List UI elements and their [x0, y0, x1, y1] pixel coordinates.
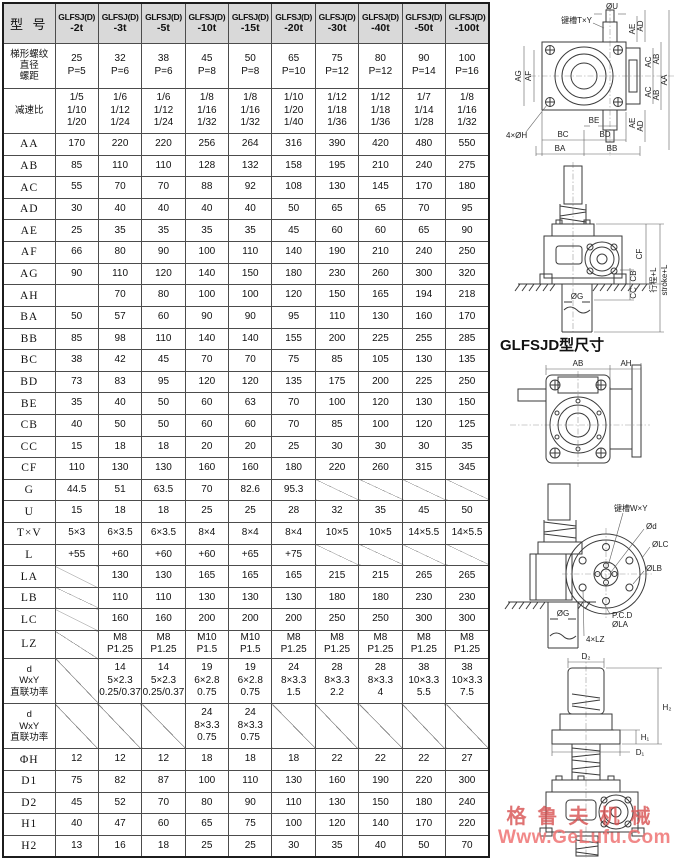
spec-cell: 85 — [55, 328, 98, 350]
spec-cell: 70 — [142, 792, 185, 814]
spec-cell: 60 — [142, 306, 185, 328]
row-label: AF — [3, 242, 55, 264]
row-label: T×V — [3, 523, 55, 545]
row-label: G — [3, 479, 55, 501]
spec-cell: 550 — [446, 134, 489, 156]
spec-cell: 110 — [98, 155, 141, 177]
spec-cell: 85 — [315, 414, 358, 436]
spec-cell: 18 — [185, 749, 228, 771]
fig3-labels: AB AH — [573, 359, 632, 368]
dim-label-od: Ød — [646, 522, 657, 531]
spec-cell: 110 — [315, 306, 358, 328]
row-label: LB — [3, 587, 55, 609]
spec-cell: 5×3 — [55, 523, 98, 545]
spec-cell: 18 — [272, 749, 315, 771]
spec-cell: 35 — [98, 220, 141, 242]
spec-cell: M10 P1.5 — [185, 631, 228, 659]
spec-cell: 165 — [185, 566, 228, 588]
row-label: BA — [3, 306, 55, 328]
spec-cell: 19 6×2.8 0.75 — [185, 658, 228, 703]
spec-cell — [55, 609, 98, 631]
spec-cell: 82 — [98, 770, 141, 792]
spec-cell: 215 — [359, 566, 402, 588]
spec-cell: M8 P1.25 — [359, 631, 402, 659]
model-header-15t: GLFSJ(D)-15t — [229, 3, 272, 43]
spec-cell: 25 — [55, 220, 98, 242]
stroke-label-en: stroke+L — [660, 264, 669, 295]
spec-cell: 19 6×2.8 0.75 — [229, 658, 272, 703]
spec-row-20: T×V5×36×3.56×3.58×48×48×410×510×514×5.51… — [3, 523, 489, 545]
spec-cell: +75 — [272, 544, 315, 566]
dim-label-af: AF — [524, 71, 533, 81]
model-size-label: -10t — [186, 23, 228, 35]
spec-cell: 120 — [185, 371, 228, 393]
spec-row-6: AE25353535354560606590 — [3, 220, 489, 242]
spec-cell: 230 — [315, 263, 358, 285]
spec-cell: 165 — [359, 285, 402, 307]
spec-cell: 57 — [98, 306, 141, 328]
row-label: AD — [3, 198, 55, 220]
dim-label-be: BE — [589, 116, 600, 125]
spec-cell — [55, 658, 98, 703]
spec-cell: 390 — [315, 134, 358, 156]
spec-cell: 35 — [359, 501, 402, 523]
model-size-label: -50t — [403, 23, 445, 35]
spec-cell: 35 — [229, 220, 272, 242]
spec-cell: 170 — [55, 134, 98, 156]
spec-cell — [315, 704, 358, 749]
spec-cell: 65 — [185, 814, 228, 836]
spec-cell — [272, 704, 315, 749]
spec-cell: 50 — [272, 198, 315, 220]
spec-cell: M8 P1.25 — [315, 631, 358, 659]
spec-cell: 90 — [229, 792, 272, 814]
spec-cell: 40 — [98, 393, 141, 415]
spec-cell: 12 — [142, 749, 185, 771]
dim-label-h2: H₂ — [663, 703, 672, 712]
spec-cell: 160 — [229, 458, 272, 480]
dim-label-cf: CF — [635, 249, 644, 260]
spec-cell: M8 P1.25 — [272, 631, 315, 659]
spec-cell: 320 — [446, 263, 489, 285]
spec-row-14: BE354050606370100120130150 — [3, 393, 489, 415]
dim-label-ab-top: AB — [652, 54, 661, 65]
spec-cell: 130 — [359, 306, 402, 328]
row-label: AA — [3, 134, 55, 156]
spec-cell: 60 — [185, 393, 228, 415]
spec-cell: 50 — [402, 835, 445, 857]
row-label: AE — [3, 220, 55, 242]
dim-label-og2: ØG — [557, 609, 569, 618]
spec-cell: 108 — [272, 177, 315, 199]
spec-cell: 265 — [446, 566, 489, 588]
spec-cell: 14 5×2.3 0.25/0.37 — [142, 658, 185, 703]
spec-cell: 264 — [229, 134, 272, 156]
spec-cell: 160 — [315, 770, 358, 792]
dim-label-ba: BA — [555, 144, 566, 153]
spec-cell: 194 — [402, 285, 445, 307]
spec-cell: 200 — [315, 328, 358, 350]
spec-cell: 170 — [446, 306, 489, 328]
spec-cell: 220 — [315, 458, 358, 480]
spec-cell: 50 — [142, 414, 185, 436]
spec-cell: 260 — [359, 263, 402, 285]
spec-cell: 130 — [272, 587, 315, 609]
spec-row-16: CC15181820202530303035 — [3, 436, 489, 458]
spec-cell: 6×3.5 — [142, 523, 185, 545]
spec-cell: 38 10×3.3 7.5 — [446, 658, 489, 703]
spec-cell: 250 — [359, 609, 402, 631]
spec-cell: 16 — [98, 835, 141, 857]
spec-cell: 27 — [446, 749, 489, 771]
spec-cell: 90 — [446, 220, 489, 242]
model-size-label: -5t — [142, 23, 184, 35]
spec-cell: 128 — [185, 155, 228, 177]
row-label: AH — [3, 285, 55, 307]
spec-cell: 110 — [142, 587, 185, 609]
spec-cell: 8×4 — [229, 523, 272, 545]
spec-cell: 25 P=5 — [55, 43, 98, 88]
spec-cell: 22 — [315, 749, 358, 771]
spec-cell: 315 — [402, 458, 445, 480]
spec-cell — [98, 704, 141, 749]
dim-label-h1: H₁ — [641, 733, 650, 742]
spec-cell: 40 — [359, 835, 402, 857]
spec-cell — [55, 566, 98, 588]
spec-cell: 25 — [229, 501, 272, 523]
spec-cell: 40 — [142, 198, 185, 220]
spec-cell: 90 — [229, 306, 272, 328]
spec-cell — [402, 544, 445, 566]
dim-label-ab-bottom: AB — [652, 90, 661, 101]
spec-cell: 300 — [446, 609, 489, 631]
row-label: AG — [3, 263, 55, 285]
spec-cell: 195 — [315, 155, 358, 177]
spec-cell: 165 — [229, 566, 272, 588]
spec-row-7: AF668090100110140190210240250 — [3, 242, 489, 264]
spec-cell: 82.6 — [229, 479, 272, 501]
spec-cell: 160 — [98, 609, 141, 631]
model-header-3t: GLFSJ(D)-3t — [98, 3, 141, 43]
spec-cell: 60 — [229, 414, 272, 436]
dim-label-ola: ØLA — [612, 620, 629, 629]
spec-cell: 100 — [185, 770, 228, 792]
model-header-5t: GLFSJ(D)-5t — [142, 3, 185, 43]
spec-cell: 75 — [229, 814, 272, 836]
spec-cell: 200 — [359, 371, 402, 393]
section-heading: GLFSJD型尺寸 — [500, 334, 604, 355]
model-header-corner: 型 号 — [3, 3, 55, 43]
spec-cell: 1/8 1/16 1/32 — [185, 88, 228, 133]
spec-cell: 25 — [272, 436, 315, 458]
spec-row-2: AA170220220256264316390420480550 — [3, 134, 489, 156]
spec-cell: 1/5 1/10 1/20 — [55, 88, 98, 133]
spec-cell: 130 — [98, 566, 141, 588]
spec-cell: 120 — [359, 393, 402, 415]
row-label: H2 — [3, 835, 55, 857]
spec-cell: 105 — [359, 350, 402, 372]
spec-cell: 220 — [402, 770, 445, 792]
spec-cell: 170 — [402, 177, 445, 199]
watermark-line2: Www.GeLufu.Com — [498, 828, 670, 849]
dim-label-olc: ØLC — [652, 540, 669, 549]
spec-cell: 10×5 — [315, 523, 358, 545]
spec-cell: 12 — [55, 749, 98, 771]
spec-row-11: BB8598110140140155200225255285 — [3, 328, 489, 350]
row-label: 梯形螺纹 直径 螺距 — [3, 43, 55, 88]
spec-cell: 145 — [359, 177, 402, 199]
spec-cell: 45 P=8 — [185, 43, 228, 88]
spec-row-30: D24552708090110130150180240 — [3, 792, 489, 814]
spec-cell — [402, 479, 445, 501]
spec-cell: 155 — [272, 328, 315, 350]
spec-row-18: G44.55163.57082.695.3 — [3, 479, 489, 501]
spec-cell: 210 — [359, 242, 402, 264]
spec-cell: 50 — [142, 393, 185, 415]
spec-cell: 80 — [185, 792, 228, 814]
model-header-40t: GLFSJ(D)-40t — [359, 3, 402, 43]
spec-cell: 140 — [359, 814, 402, 836]
spec-cell: 85 — [55, 155, 98, 177]
spec-row-4: AC5570708892108130145170180 — [3, 177, 489, 199]
fig3-top-view-drawing: AB AH — [490, 355, 678, 480]
spec-cell: 8×4 — [185, 523, 228, 545]
spec-cell: 1/8 1/16 1/32 — [446, 88, 489, 133]
spec-cell: 100 — [272, 814, 315, 836]
spec-row-19: U15181825252832354550 — [3, 501, 489, 523]
spec-cell: 240 — [446, 792, 489, 814]
spec-row-9: AH7080100100120150165194218 — [3, 285, 489, 307]
spec-cell: 180 — [359, 587, 402, 609]
dim-label-cb: CB — [629, 270, 638, 281]
spec-cell — [402, 704, 445, 749]
spec-cell — [315, 544, 358, 566]
drawings-panel: ØU 键槽T×Y AG AF AE AD AC AB AA AC AB AE A… — [490, 0, 678, 860]
model-header-2t: GLFSJ(D)-2t — [55, 3, 98, 43]
spec-cell — [446, 479, 489, 501]
spec-cell: 6×3.5 — [98, 523, 141, 545]
spec-sheet-page: 型 号GLFSJ(D)-2tGLFSJ(D)-3tGLFSJ(D)-5tGLFS… — [0, 0, 678, 860]
dim-label-ah: AH — [620, 359, 631, 368]
spec-cell: 250 — [315, 609, 358, 631]
spec-row-22: LA130130165165165215215265265 — [3, 566, 489, 588]
spec-row-13: BD738395120120135175200225250 — [3, 371, 489, 393]
spec-cell: 70 — [185, 479, 228, 501]
dim-label-d2: D₂ — [582, 652, 591, 661]
model-size-label: -15t — [229, 23, 271, 35]
spec-cell: 88 — [185, 177, 228, 199]
dim-label-ab: AB — [573, 359, 584, 368]
spec-row-31: H14047606575100120140170220 — [3, 814, 489, 836]
spec-cell: 30 — [272, 835, 315, 857]
spec-cell: 120 — [402, 414, 445, 436]
spec-cell: 215 — [315, 566, 358, 588]
model-header-100t: GLFSJ(D)-100t — [446, 3, 489, 43]
spec-cell — [446, 544, 489, 566]
row-label: ΦH — [3, 749, 55, 771]
fig1-top-view-drawing: ØU 键槽T×Y AG AF AE AD AC AB AA AC AB AE A… — [490, 2, 678, 160]
spec-cell: 250 — [446, 371, 489, 393]
spec-row-28: ΦH12121218181822222227 — [3, 749, 489, 771]
spec-cell: 1/6 1/12 1/24 — [98, 88, 141, 133]
spec-cell: 45 — [402, 501, 445, 523]
spec-cell: 1/12 1/18 1/36 — [359, 88, 402, 133]
spec-cell: 24 8×3.3 0.75 — [229, 704, 272, 749]
spec-cell: 220 — [446, 814, 489, 836]
spec-cell: 240 — [402, 155, 445, 177]
spec-cell: 255 — [402, 328, 445, 350]
dim-label-pcd: P.C.D — [612, 611, 633, 620]
spec-cell: 230 — [402, 587, 445, 609]
spec-cell: 130 — [315, 177, 358, 199]
spec-cell: 15 — [55, 436, 98, 458]
spec-cell: 92 — [229, 177, 272, 199]
spec-cell: 110 — [98, 587, 141, 609]
model-header-50t: GLFSJ(D)-50t — [402, 3, 445, 43]
spec-cell: 18 — [98, 501, 141, 523]
spec-cell: 180 — [272, 458, 315, 480]
row-label: D1 — [3, 770, 55, 792]
spec-row-12: BC38424570707585105130135 — [3, 350, 489, 372]
dim-label-ad-bottom: AD — [636, 120, 645, 131]
spec-cell: 14 5×2.3 0.25/0.37 — [98, 658, 141, 703]
spec-cell: 25 — [185, 501, 228, 523]
spec-row-25: LZM8 P1.25M8 P1.25M10 P1.5M10 P1.5M8 P1.… — [3, 631, 489, 659]
spec-cell: 90 — [185, 306, 228, 328]
spec-cell: 20 — [185, 436, 228, 458]
spec-cell: 130 — [402, 350, 445, 372]
fig2-front-view-drawing: ØG CB CC CF 行程+L stroke+L — [490, 160, 678, 336]
spec-cell: 28 — [272, 501, 315, 523]
spec-cell: 8×4 — [272, 523, 315, 545]
spec-cell: 18 — [142, 436, 185, 458]
row-label: LZ — [3, 631, 55, 659]
spec-cell: 130 — [185, 587, 228, 609]
spec-cell: 40 — [55, 814, 98, 836]
spec-cell: M10 P1.5 — [229, 631, 272, 659]
spec-cell: 51 — [98, 479, 141, 501]
model-header-30t: GLFSJ(D)-30t — [315, 3, 358, 43]
dim-label-bc: BC — [557, 130, 568, 139]
spec-cell: 85 — [315, 350, 358, 372]
spec-cell: 150 — [229, 263, 272, 285]
spec-cell: 100 — [315, 393, 358, 415]
row-label: d WxY 直联功率 — [3, 704, 55, 749]
spec-cell: 70 — [98, 285, 141, 307]
spec-cell: 100 — [185, 285, 228, 307]
keyway-wxy-label: 键槽W×Y — [614, 503, 648, 513]
spec-row-8: AG90110120140150180230260300320 — [3, 263, 489, 285]
spec-cell: 14×5.5 — [402, 523, 445, 545]
spec-cell: 63 — [229, 393, 272, 415]
spec-cell: M8 P1.25 — [98, 631, 141, 659]
spec-cell: 15 — [55, 501, 98, 523]
spec-cell: 35 — [185, 220, 228, 242]
spec-cell — [55, 587, 98, 609]
spec-cell — [359, 704, 402, 749]
spec-cell: 60 — [142, 814, 185, 836]
spec-cell: 150 — [315, 285, 358, 307]
row-label: AB — [3, 155, 55, 177]
spec-cell: 175 — [315, 371, 358, 393]
spec-cell: 110 — [55, 458, 98, 480]
spec-cell: 130 — [402, 393, 445, 415]
dim-label-4xlz: 4×LZ — [586, 635, 605, 644]
spec-cell: 100 — [185, 242, 228, 264]
spec-cell: 150 — [359, 792, 402, 814]
spec-cell: 300 — [402, 263, 445, 285]
dim-label-cc: CC — [629, 287, 638, 299]
fig4-flange-view-drawing: 键槽W×Y Ød ØLC ØLB P.C.D ØLA 4×LZ ØG — [490, 480, 678, 652]
spec-cell: 285 — [446, 328, 489, 350]
fig1-labels: ØU 键槽T×Y AG AF AE AD AC AB AA AC AB AE A… — [506, 2, 669, 153]
spec-cell: 14×5.5 — [446, 523, 489, 545]
spec-cell: 55 — [55, 177, 98, 199]
watermark: 格鲁夫机械 Www.GeLufu.Com — [498, 806, 670, 849]
row-label: CC — [3, 436, 55, 458]
spec-cell: 300 — [402, 609, 445, 631]
row-label: AC — [3, 177, 55, 199]
spec-cell: 120 — [229, 371, 272, 393]
spec-cell: 130 — [142, 458, 185, 480]
spec-cell: 95.3 — [272, 479, 315, 501]
row-label: 减速比 — [3, 88, 55, 133]
spec-cell: 70 — [98, 177, 141, 199]
spec-row-3: AB85110110128132158195210240275 — [3, 155, 489, 177]
spec-cell: +60 — [98, 544, 141, 566]
spec-cell: 45 — [142, 350, 185, 372]
spec-cell: 345 — [446, 458, 489, 480]
spec-cell: 45 — [272, 220, 315, 242]
spec-cell: 28 8×3.3 4 — [359, 658, 402, 703]
dim-label-bb: BB — [607, 144, 618, 153]
spec-cell — [55, 631, 98, 659]
spec-cell: 18 — [142, 501, 185, 523]
spec-cell: 220 — [98, 134, 141, 156]
model-size-label: -100t — [446, 23, 488, 35]
spec-cell — [359, 544, 402, 566]
spec-cell: 50 P=8 — [229, 43, 272, 88]
spec-cell: 125 — [446, 414, 489, 436]
row-label: BD — [3, 371, 55, 393]
spec-cell: 30 — [315, 436, 358, 458]
dim-label-ad-top: AD — [636, 20, 645, 31]
spec-cell: 480 — [402, 134, 445, 156]
dim-label-d1: D₁ — [636, 748, 645, 757]
row-label: d WxY 直联功率 — [3, 658, 55, 703]
spec-row-15: CB40505060607085100120125 — [3, 414, 489, 436]
spec-cell: M8 P1.25 — [446, 631, 489, 659]
spec-cell: 210 — [359, 155, 402, 177]
spec-cell: 52 — [98, 792, 141, 814]
dim-label-og: ØG — [571, 292, 583, 301]
spec-cell: 38 — [55, 350, 98, 372]
spec-cell: 150 — [446, 393, 489, 415]
spec-row-29: D1758287100110130160190220300 — [3, 770, 489, 792]
spec-cell: 44.5 — [55, 479, 98, 501]
spec-cell: 180 — [272, 263, 315, 285]
spec-cell: 130 — [272, 770, 315, 792]
row-label: CB — [3, 414, 55, 436]
spec-cell: 130 — [98, 458, 141, 480]
spec-cell: 160 — [185, 458, 228, 480]
spec-cell: 18 — [142, 835, 185, 857]
spec-cell: 83 — [98, 371, 141, 393]
spec-cell: 1/10 1/20 1/40 — [272, 88, 315, 133]
spec-cell: 73 — [55, 371, 98, 393]
spec-cell: 50 — [55, 306, 98, 328]
spec-cell: 18 — [98, 436, 141, 458]
